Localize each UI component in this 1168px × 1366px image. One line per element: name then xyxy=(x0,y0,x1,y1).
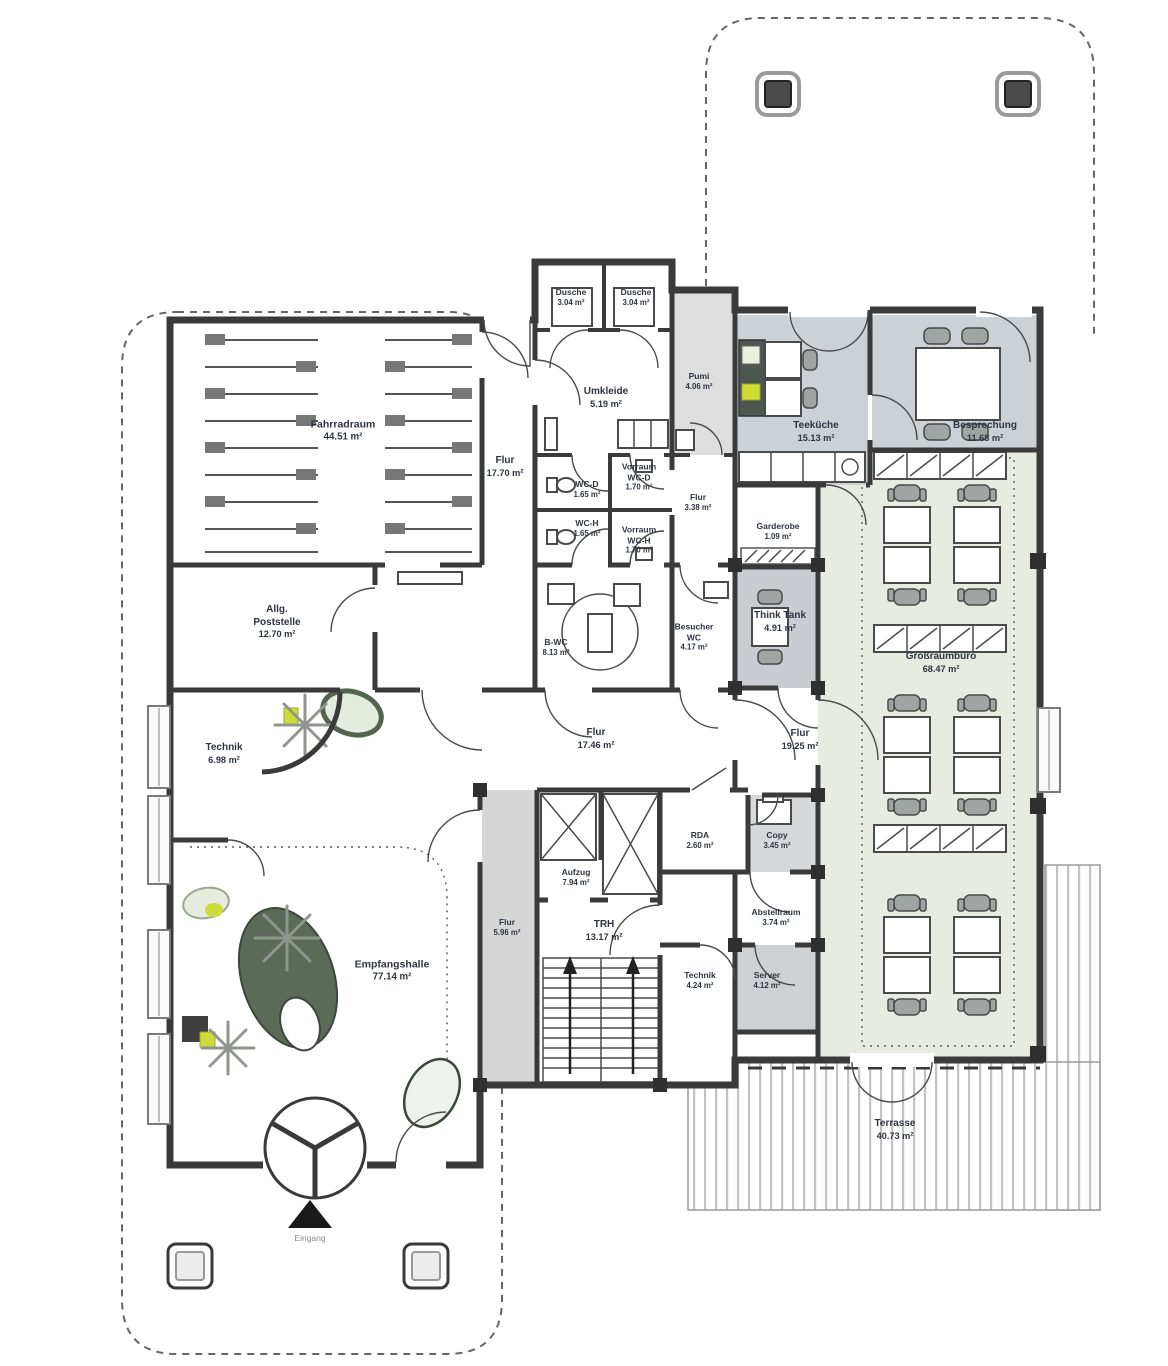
floorplan-canvas: Fahrradraum44.51 m² Dusche3.04 m² Dusche… xyxy=(0,0,1168,1366)
revolving-door xyxy=(265,1098,365,1198)
plant-icon xyxy=(202,1022,254,1074)
plant-icon xyxy=(275,695,335,755)
entrance-label: Eingang xyxy=(294,1233,325,1243)
post-counter xyxy=(398,572,462,584)
staircase xyxy=(543,956,660,1082)
plant-icon xyxy=(255,906,319,970)
floorplan-drawing xyxy=(0,0,1168,1366)
wardrobe xyxy=(741,548,815,564)
entrance-arrow-icon xyxy=(288,1200,332,1228)
